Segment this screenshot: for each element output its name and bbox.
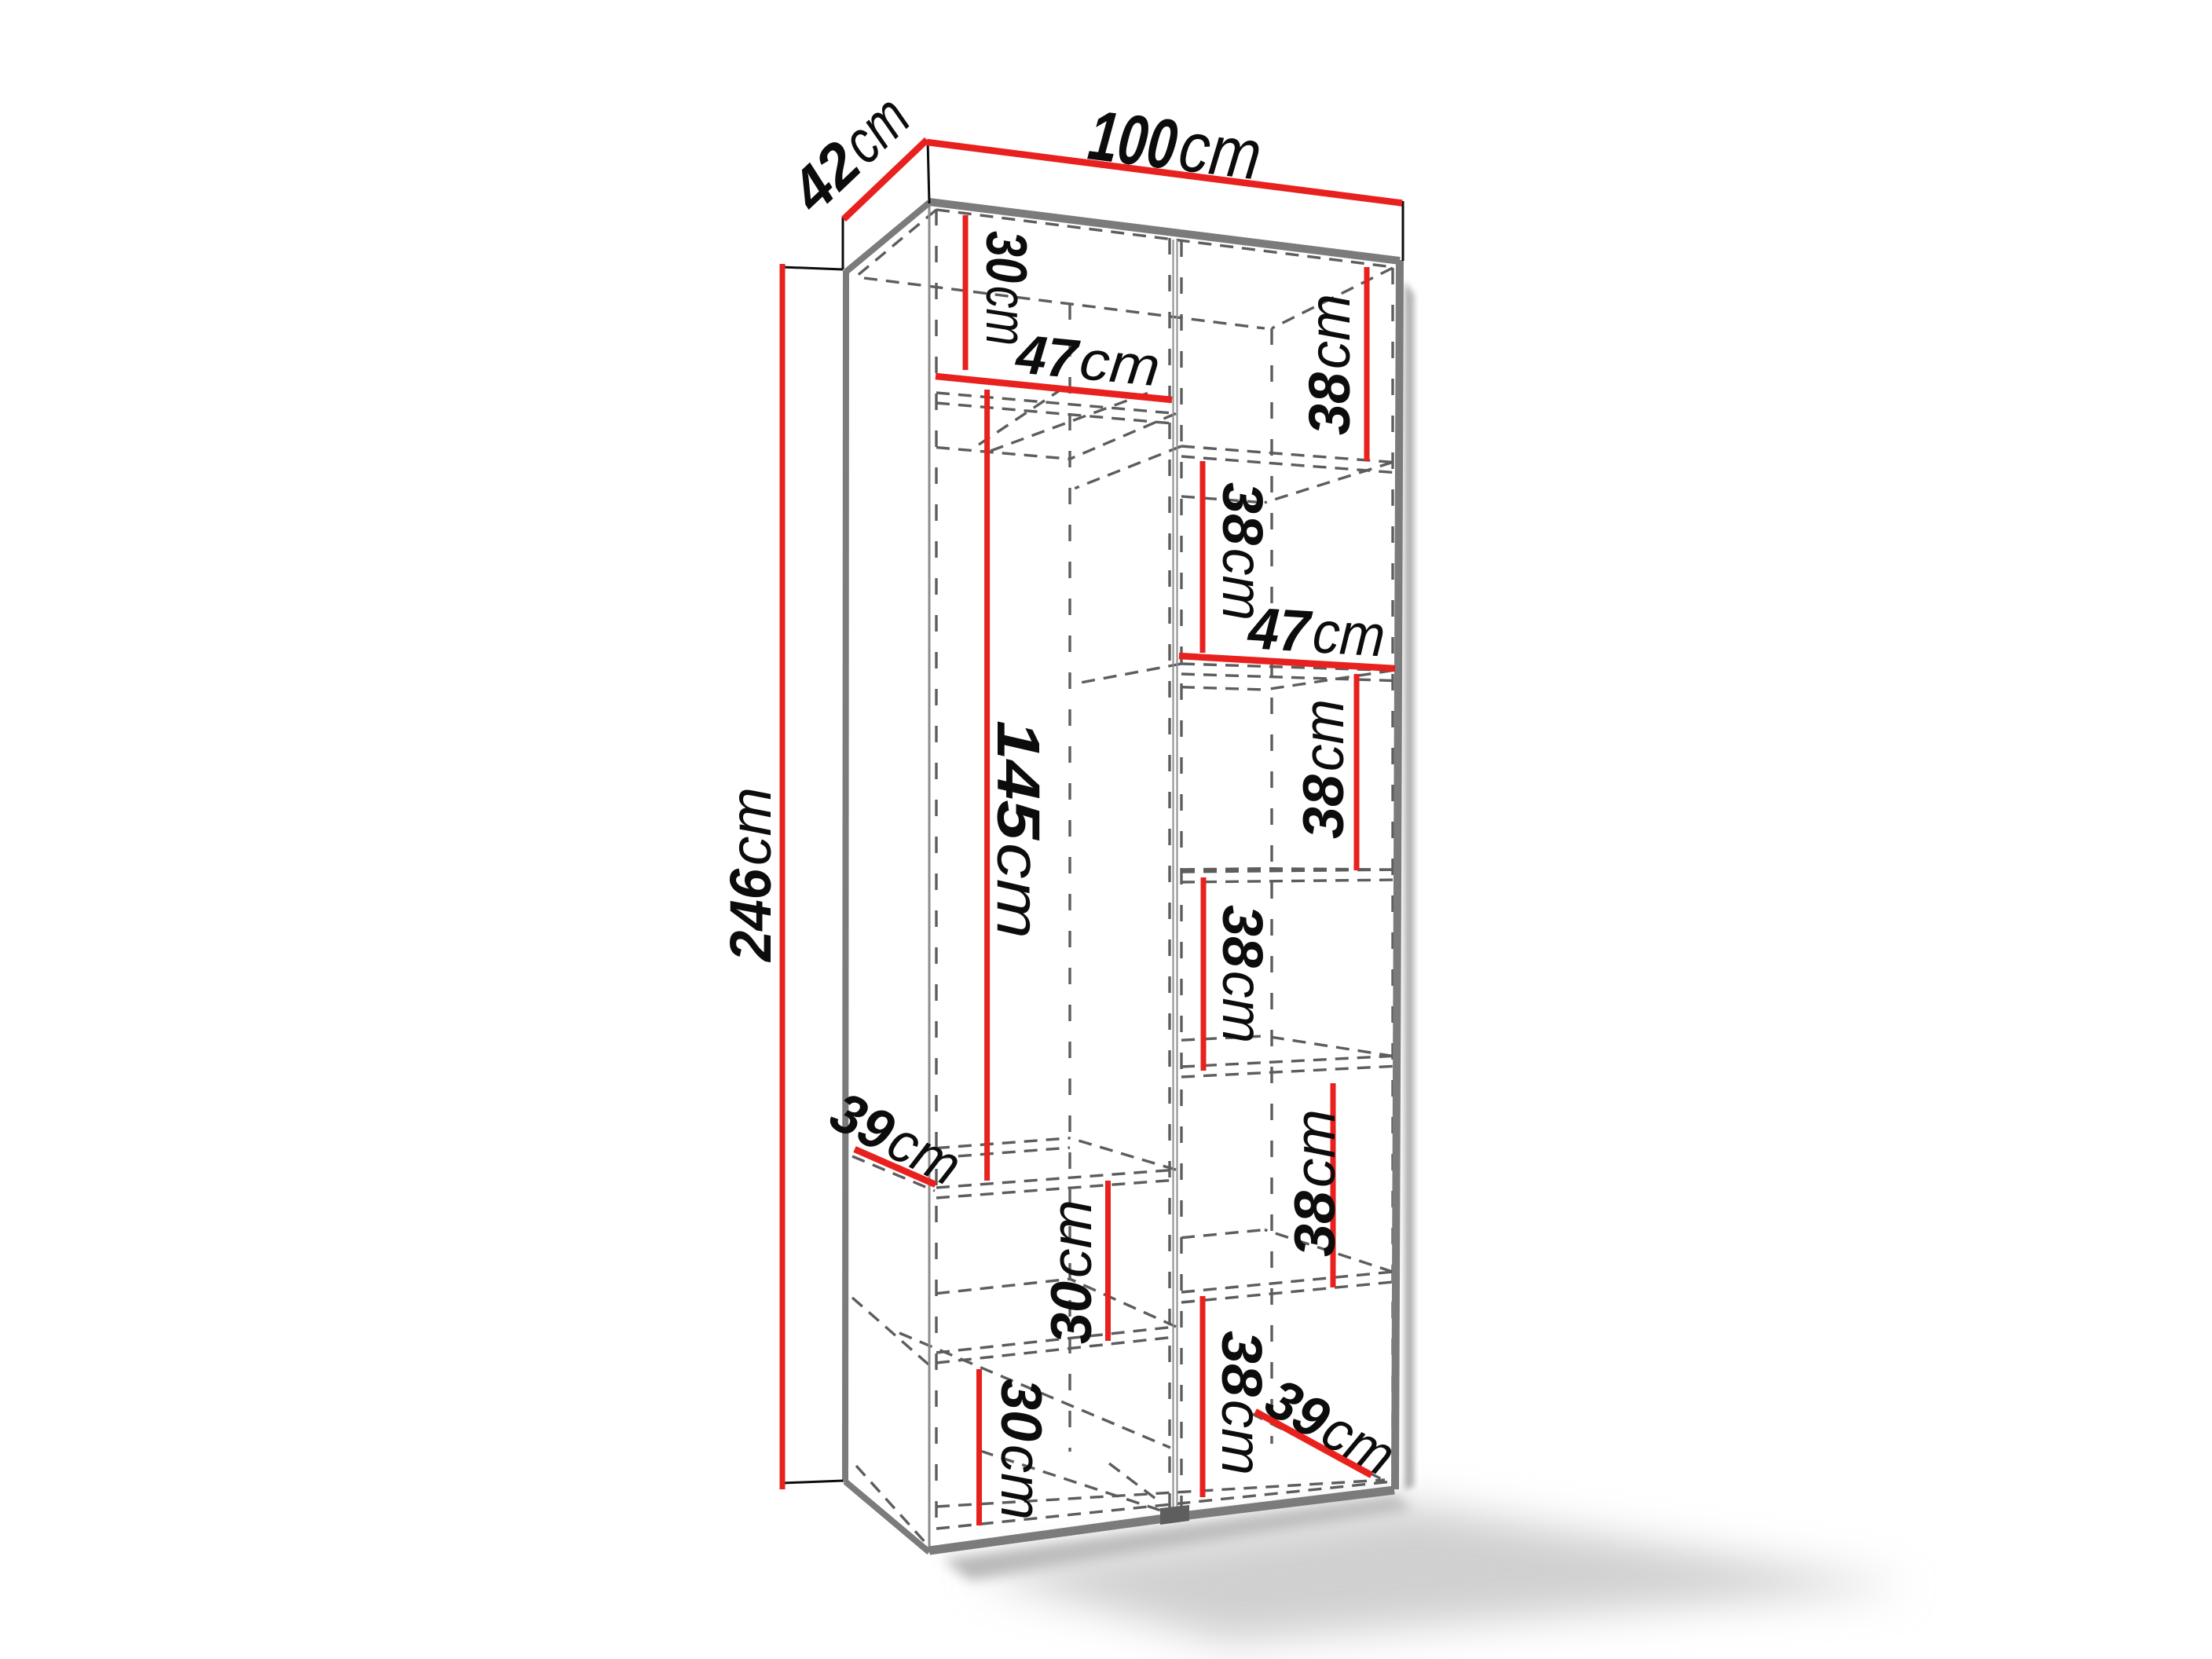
svg-text:cm: cm [1297, 294, 1362, 369]
svg-text:100: 100 [1085, 97, 1181, 185]
svg-text:145: 145 [984, 720, 1052, 840]
svg-text:246: 246 [718, 868, 783, 963]
svg-text:38: 38 [1210, 905, 1273, 968]
svg-text:cm: cm [989, 1445, 1053, 1520]
svg-text:cm: cm [1040, 1199, 1104, 1278]
svg-text:38: 38 [1210, 482, 1273, 545]
svg-text:cm: cm [984, 843, 1052, 939]
svg-text:38: 38 [1210, 1331, 1273, 1397]
svg-text:cm: cm [1311, 599, 1387, 668]
svg-text:30: 30 [989, 1379, 1053, 1441]
svg-text:47: 47 [1245, 595, 1314, 665]
svg-text:cm: cm [1175, 108, 1265, 196]
svg-text:38: 38 [1292, 775, 1356, 839]
svg-text:cm: cm [718, 787, 783, 866]
svg-text:cm: cm [1077, 329, 1163, 397]
svg-text:30: 30 [974, 231, 1038, 283]
svg-text:cm: cm [1210, 971, 1273, 1043]
svg-text:38: 38 [1284, 1191, 1347, 1257]
svg-text:30: 30 [1040, 1281, 1104, 1344]
svg-text:cm: cm [1284, 1109, 1347, 1188]
svg-text:47: 47 [1013, 323, 1082, 390]
svg-text:38: 38 [1297, 372, 1362, 435]
svg-text:cm: cm [1292, 699, 1356, 771]
